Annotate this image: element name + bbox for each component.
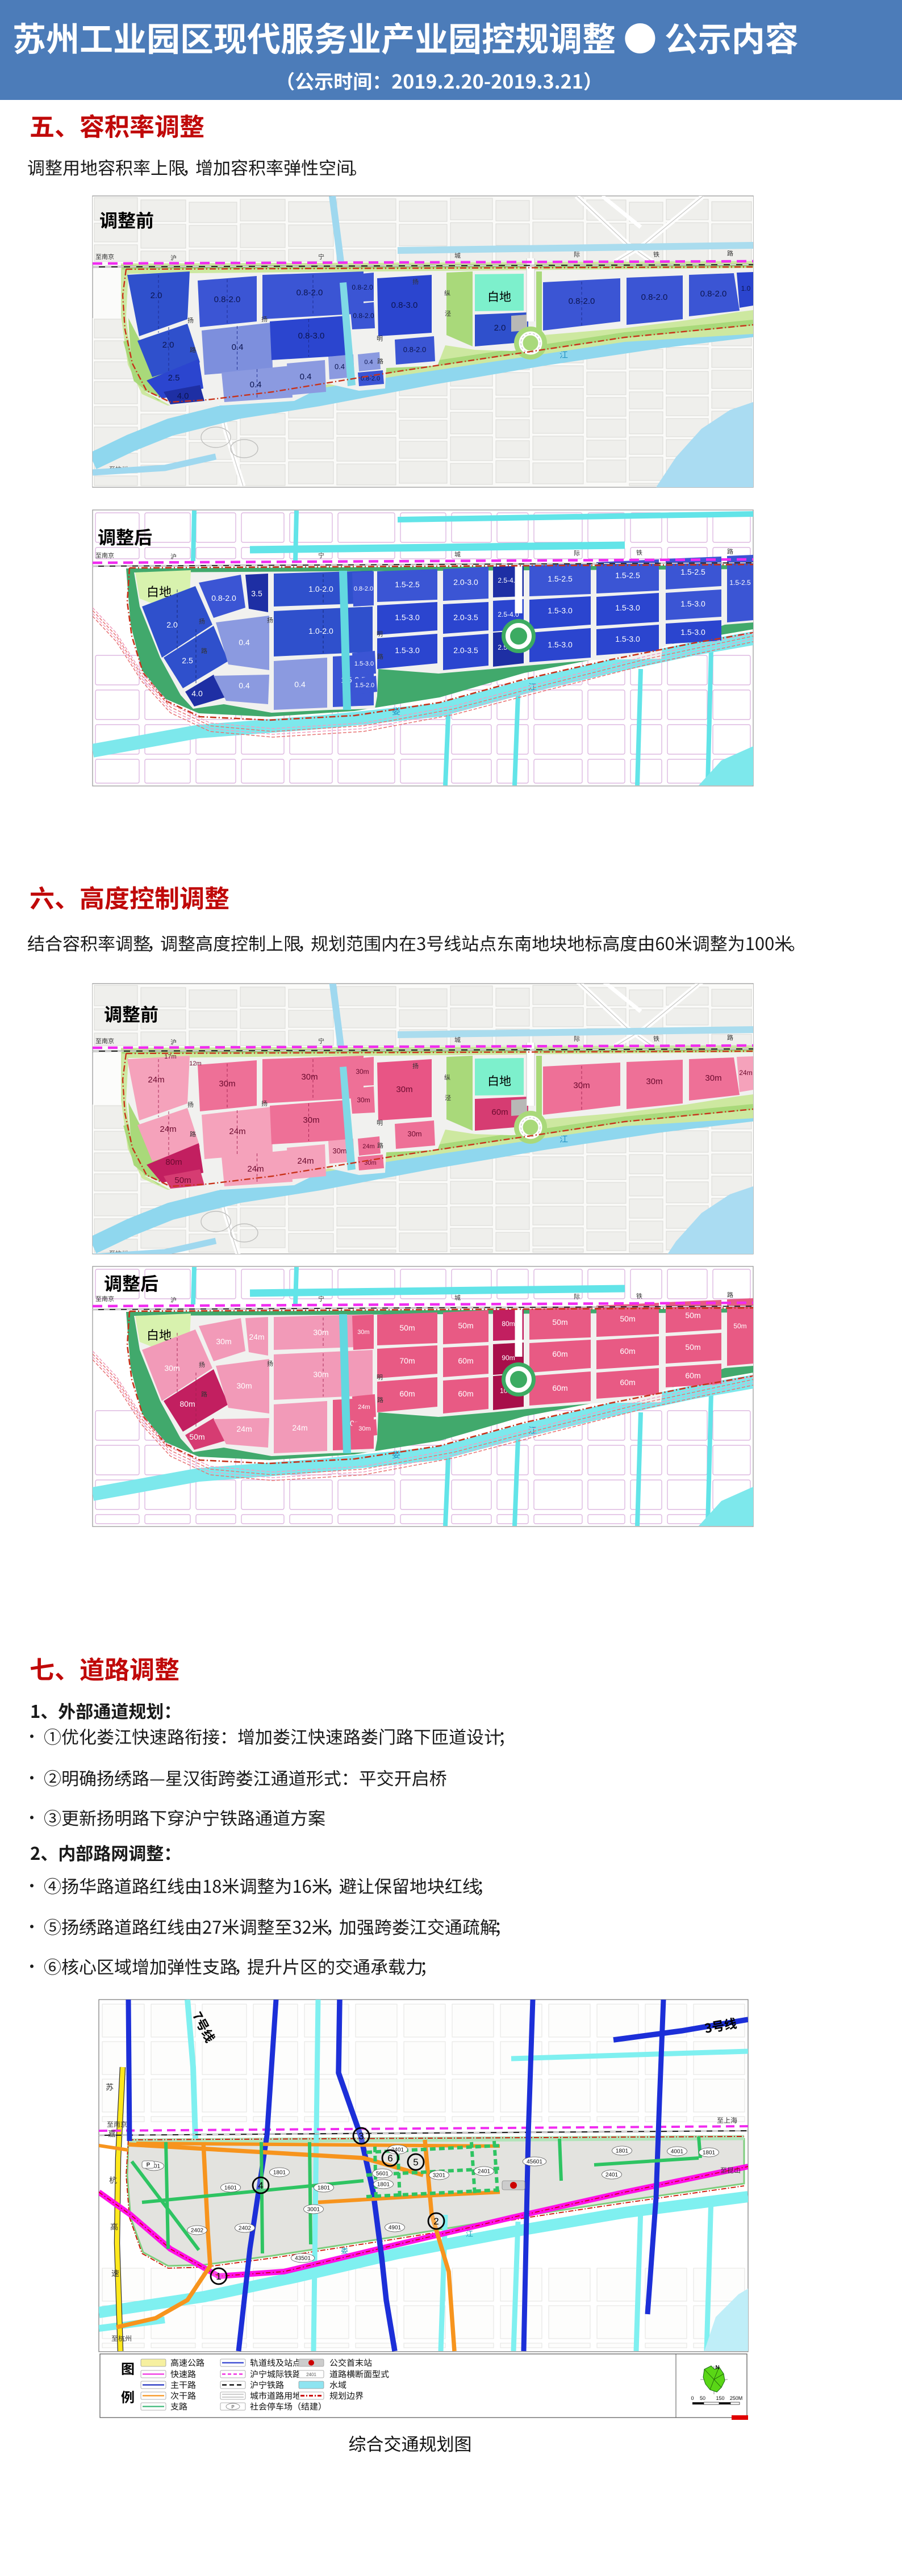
svg-text:4: 4 <box>258 2180 263 2191</box>
svg-text:60m: 60m <box>458 1389 473 1398</box>
svg-text:24m: 24m <box>297 1156 314 1166</box>
svg-text:1.5-2.5: 1.5-2.5 <box>548 574 573 583</box>
svg-text:30m: 30m <box>357 1096 370 1104</box>
svg-text:2.0: 2.0 <box>162 340 174 350</box>
svg-text:24m: 24m <box>358 1404 370 1411</box>
svg-text:1801: 1801 <box>273 2170 286 2176</box>
svg-text:50m: 50m <box>685 1343 700 1352</box>
svg-text:0.8-2.0: 0.8-2.0 <box>353 312 374 320</box>
svg-text:30m: 30m <box>573 1081 590 1090</box>
svg-text:60m: 60m <box>491 1107 508 1117</box>
svg-text:17m: 17m <box>164 1053 176 1060</box>
svg-text:1.5-3.0: 1.5-3.0 <box>548 606 573 615</box>
svg-text:N: N <box>715 2365 719 2371</box>
svg-text:1.5-3.0: 1.5-3.0 <box>680 628 705 637</box>
svg-text:2401: 2401 <box>306 2372 316 2377</box>
svg-text:0.8-2.0: 0.8-2.0 <box>403 345 426 354</box>
svg-text:2.0-3.5: 2.0-3.5 <box>453 613 478 622</box>
svg-text:30m: 30m <box>356 1068 369 1076</box>
svg-text:4901: 4901 <box>389 2225 402 2231</box>
svg-text:30m: 30m <box>407 1130 421 1138</box>
svg-text:1.5-3.0: 1.5-3.0 <box>615 603 640 612</box>
svg-text:60m: 60m <box>620 1346 635 1356</box>
svg-text:60m: 60m <box>685 1371 700 1380</box>
svg-text:30m: 30m <box>303 1115 319 1125</box>
svg-text:70m: 70m <box>399 1356 415 1365</box>
svg-text:2: 2 <box>433 2216 439 2227</box>
svg-text:1.5-2.5: 1.5-2.5 <box>615 571 640 580</box>
svg-text:60m: 60m <box>552 1349 567 1358</box>
svg-text:P: P <box>231 2404 234 2410</box>
svg-text:24m: 24m <box>362 1143 374 1150</box>
svg-text:1.5-2.5: 1.5-2.5 <box>729 579 751 587</box>
svg-text:1: 1 <box>216 2271 221 2282</box>
svg-text:24m: 24m <box>236 1424 252 1433</box>
svg-text:0.4: 0.4 <box>300 372 312 382</box>
svg-text:30m: 30m <box>646 1077 662 1086</box>
svg-text:30m: 30m <box>313 1328 328 1337</box>
svg-text:3201: 3201 <box>433 2173 446 2179</box>
svg-text:1.5-2.5: 1.5-2.5 <box>680 567 705 576</box>
svg-text:0.4: 0.4 <box>250 380 262 390</box>
svg-text:0.8-2.0: 0.8-2.0 <box>700 289 727 299</box>
svg-text:4.0: 4.0 <box>191 689 203 698</box>
svg-text:50m: 50m <box>399 1323 415 1332</box>
svg-text:2.5: 2.5 <box>182 656 193 665</box>
svg-text:45601: 45601 <box>527 2159 542 2165</box>
svg-text:50m: 50m <box>189 1432 204 1441</box>
svg-text:0.4: 0.4 <box>239 638 250 647</box>
svg-text:60m: 60m <box>552 1383 567 1392</box>
svg-text:5: 5 <box>413 2157 418 2168</box>
svg-text:80m: 80m <box>165 1157 182 1167</box>
svg-text:2.0-3.5: 2.0-3.5 <box>453 646 478 655</box>
svg-text:50: 50 <box>700 2395 705 2401</box>
svg-text:2402: 2402 <box>239 2226 252 2232</box>
svg-text:80m: 80m <box>502 1320 515 1328</box>
svg-text:30m: 30m <box>358 1425 370 1432</box>
svg-text:3.5: 3.5 <box>251 589 262 598</box>
svg-text:30m: 30m <box>219 1079 235 1089</box>
svg-text:80m: 80m <box>179 1399 195 1408</box>
svg-text:1.0: 1.0 <box>741 285 751 292</box>
svg-text:60m: 60m <box>620 1378 635 1387</box>
svg-text:0.8-2.0: 0.8-2.0 <box>641 292 668 302</box>
svg-text:2401: 2401 <box>478 2169 491 2175</box>
svg-text:150: 150 <box>716 2395 724 2401</box>
svg-text:1.5-3.0: 1.5-3.0 <box>548 640 573 649</box>
svg-text:0.8-2.0: 0.8-2.0 <box>569 296 595 306</box>
svg-text:30m: 30m <box>396 1085 412 1094</box>
svg-text:24m: 24m <box>292 1423 307 1432</box>
svg-text:30m: 30m <box>301 1072 318 1082</box>
svg-text:50m: 50m <box>620 1314 635 1323</box>
svg-text:0.8-3.0: 0.8-3.0 <box>391 300 418 310</box>
svg-text:50m: 50m <box>552 1318 567 1327</box>
svg-text:2.0: 2.0 <box>151 291 162 300</box>
svg-text:1.5-2.0: 1.5-2.0 <box>355 682 374 689</box>
svg-text:1801: 1801 <box>703 2150 716 2156</box>
svg-text:12m: 12m <box>189 1060 201 1067</box>
svg-text:5601: 5601 <box>376 2171 389 2177</box>
svg-text:4001: 4001 <box>671 2149 684 2155</box>
svg-text:30m: 30m <box>164 1364 179 1373</box>
svg-text:6: 6 <box>387 2153 392 2164</box>
svg-text:2401: 2401 <box>605 2172 619 2178</box>
svg-text:0: 0 <box>691 2395 694 2401</box>
svg-text:4.0: 4.0 <box>177 391 189 401</box>
svg-text:24m: 24m <box>249 1332 264 1341</box>
svg-text:1.5-3.0: 1.5-3.0 <box>680 599 705 608</box>
svg-text:1801: 1801 <box>318 2185 331 2192</box>
svg-text:30m: 30m <box>357 1329 369 1336</box>
svg-text:0.8-3.0: 0.8-3.0 <box>298 331 325 341</box>
svg-text:1801: 1801 <box>616 2148 629 2155</box>
svg-text:50m: 50m <box>733 1322 746 1330</box>
svg-text:0.8-2.0: 0.8-2.0 <box>354 586 373 592</box>
svg-text:50m: 50m <box>685 1311 700 1320</box>
svg-text:1.5-3.0: 1.5-3.0 <box>395 613 420 622</box>
svg-text:43501: 43501 <box>295 2256 311 2262</box>
svg-text:P: P <box>147 2162 151 2168</box>
svg-text:24m: 24m <box>148 1075 164 1085</box>
svg-text:30m: 30m <box>705 1073 721 1083</box>
svg-text:24m: 24m <box>739 1069 752 1077</box>
svg-text:60m: 60m <box>399 1389 415 1398</box>
svg-text:0.8-2.0: 0.8-2.0 <box>297 288 323 298</box>
svg-text:1.0-2.0: 1.0-2.0 <box>308 584 333 593</box>
svg-text:90m: 90m <box>502 1354 515 1362</box>
svg-text:50m: 50m <box>458 1321 473 1330</box>
svg-text:2402: 2402 <box>191 2228 204 2234</box>
svg-text:3001: 3001 <box>307 2207 320 2213</box>
svg-text:30m: 30m <box>216 1337 231 1346</box>
svg-text:1601: 1601 <box>224 2185 237 2192</box>
svg-text:50m: 50m <box>174 1176 191 1185</box>
svg-text:24m: 24m <box>160 1124 176 1134</box>
svg-text:1.5-3.0: 1.5-3.0 <box>395 646 420 655</box>
svg-text:2.0: 2.0 <box>166 620 178 629</box>
svg-text:1801: 1801 <box>377 2182 390 2188</box>
svg-text:0.4: 0.4 <box>335 362 345 371</box>
svg-text:30m: 30m <box>332 1147 346 1155</box>
svg-text:2.0: 2.0 <box>494 323 506 333</box>
svg-text:1.5-3.0: 1.5-3.0 <box>615 634 640 643</box>
svg-text:24m: 24m <box>229 1127 245 1136</box>
svg-text:30m: 30m <box>236 1381 252 1390</box>
svg-text:0.8-2.0: 0.8-2.0 <box>214 295 241 304</box>
svg-text:250M: 250M <box>730 2395 743 2401</box>
svg-text:1.5-3.0: 1.5-3.0 <box>354 660 374 667</box>
svg-text:60m: 60m <box>458 1356 473 1365</box>
svg-text:2.5: 2.5 <box>168 373 180 383</box>
svg-text:0.4: 0.4 <box>239 681 250 690</box>
svg-text:0.4: 0.4 <box>364 359 373 366</box>
svg-text:0.8-2.0: 0.8-2.0 <box>352 283 373 291</box>
svg-text:0.8-2.0: 0.8-2.0 <box>211 593 236 603</box>
svg-text:3: 3 <box>358 2131 364 2142</box>
svg-text:0.4: 0.4 <box>232 342 244 352</box>
svg-text:1.5-2.5: 1.5-2.5 <box>395 580 420 589</box>
svg-text:0.4: 0.4 <box>294 680 306 689</box>
svg-text:2.0-3.0: 2.0-3.0 <box>453 578 478 587</box>
svg-text:30m: 30m <box>313 1370 328 1379</box>
svg-text:1.0-2.0: 1.0-2.0 <box>308 626 333 635</box>
svg-text:24m: 24m <box>247 1164 264 1174</box>
